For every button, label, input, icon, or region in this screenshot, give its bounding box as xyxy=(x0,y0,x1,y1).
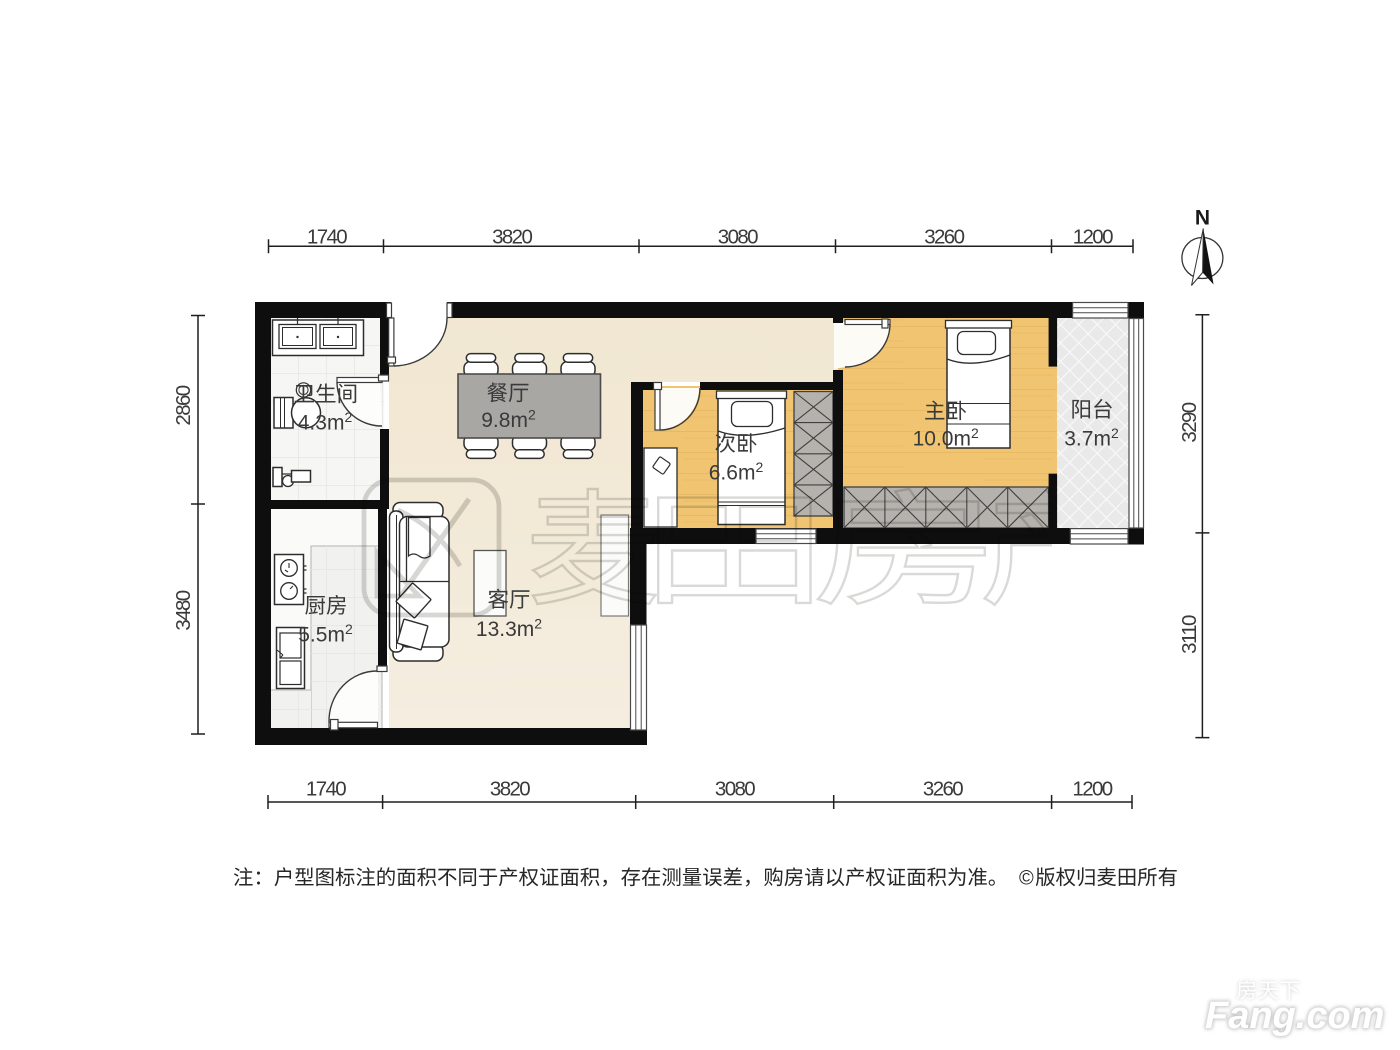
svg-text:3.7m2: 3.7m2 xyxy=(1064,425,1119,451)
svg-text:1200: 1200 xyxy=(1072,778,1112,801)
svg-text:4.3m2: 4.3m2 xyxy=(298,409,353,435)
svg-text:5.5m2: 5.5m2 xyxy=(298,621,353,647)
svg-text:3110: 3110 xyxy=(1178,615,1201,654)
svg-text:3080: 3080 xyxy=(718,226,758,249)
svg-text:N: N xyxy=(1195,207,1210,230)
svg-text:3290: 3290 xyxy=(1178,402,1201,442)
svg-text:1740: 1740 xyxy=(307,226,347,249)
svg-text:©: © xyxy=(1019,868,1034,890)
svg-text:3480: 3480 xyxy=(172,590,195,630)
svg-text:9.8m2: 9.8m2 xyxy=(481,407,536,433)
svg-text:Fang.com: Fang.com xyxy=(1205,995,1384,1037)
svg-text:2860: 2860 xyxy=(172,385,195,425)
svg-text:1200: 1200 xyxy=(1073,226,1113,249)
svg-text:3820: 3820 xyxy=(492,226,532,249)
svg-text:10.0m2: 10.0m2 xyxy=(913,425,979,451)
svg-text:1740: 1740 xyxy=(306,778,346,801)
svg-text:3260: 3260 xyxy=(924,226,964,249)
svg-text:3080: 3080 xyxy=(715,778,755,801)
svg-text:3820: 3820 xyxy=(490,778,530,801)
svg-text:13.3m2: 13.3m2 xyxy=(476,616,542,642)
svg-text:3260: 3260 xyxy=(923,778,963,801)
svg-text:6.6m2: 6.6m2 xyxy=(709,459,764,485)
